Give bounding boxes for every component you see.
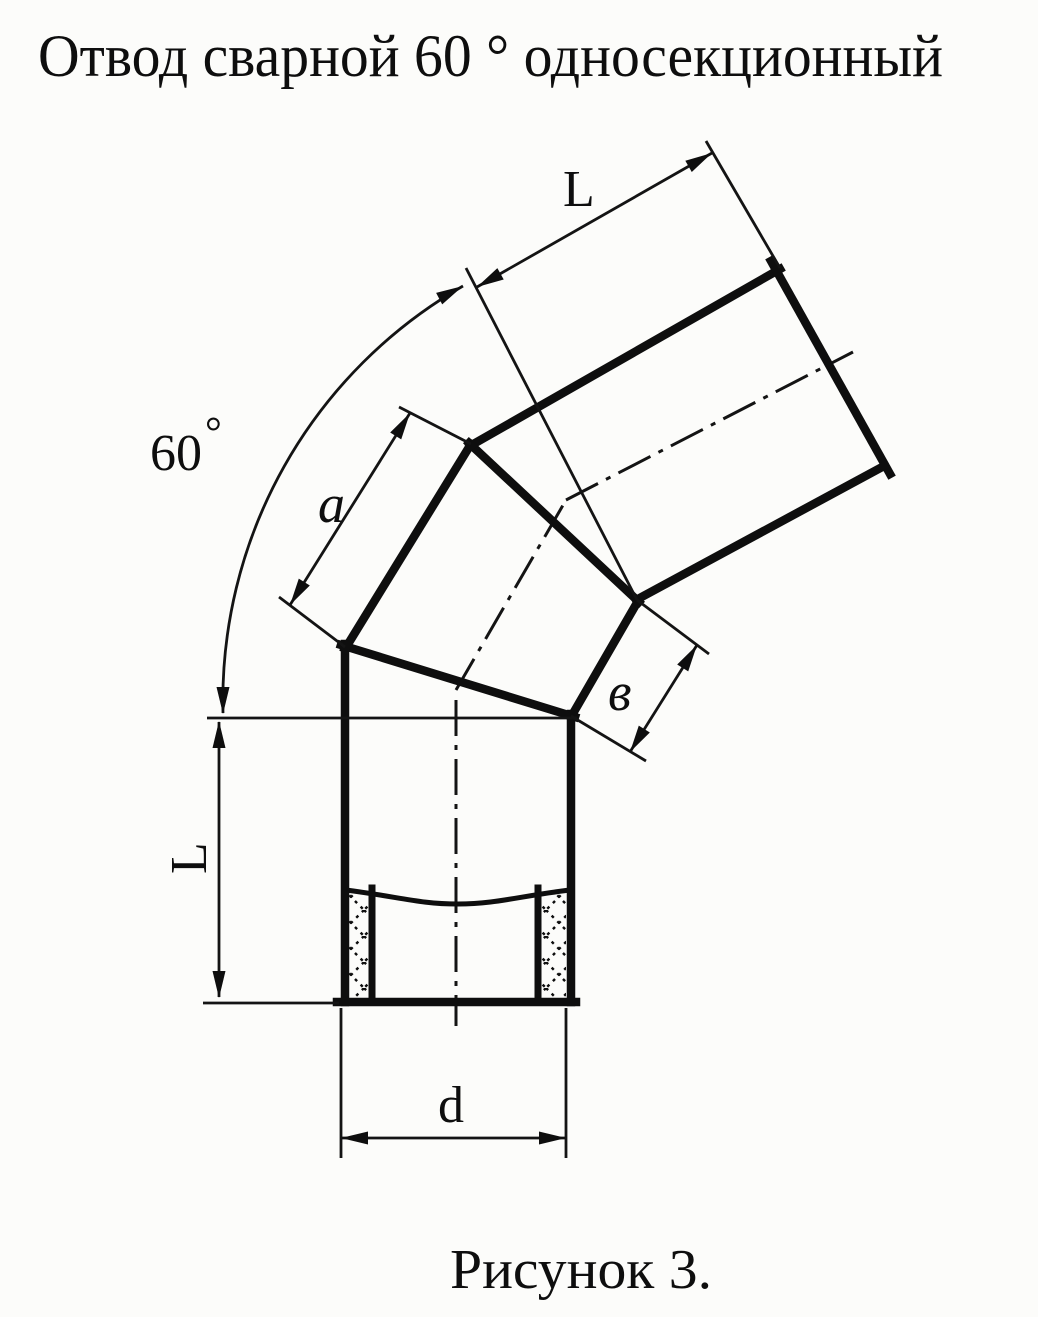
arrow-left-L-bottom	[213, 971, 226, 998]
label-lower-pipe-length: L	[161, 842, 218, 874]
middle-section-centerline	[456, 500, 566, 690]
ext-line-b-upper	[637, 600, 709, 654]
centerlines	[456, 352, 853, 1026]
weld-seam-upper	[469, 443, 639, 602]
pipe-outlines	[337, 261, 890, 1002]
label-middle-inner-edge: в	[608, 662, 631, 722]
ext-line-a-upper	[399, 407, 471, 444]
ext-line-a-lower	[279, 597, 345, 647]
arrow-left-L-top	[213, 721, 226, 748]
elbow-technical-drawing: Отвод сварной 60 ° односекционный	[0, 0, 1038, 1317]
drawing-title: Отвод сварной 60 ° односекционный	[38, 23, 943, 89]
upper-pipe-outer-wall	[470, 269, 780, 446]
scanned-drawing-page: Отвод сварной 60 ° односекционный	[0, 0, 1038, 1317]
arrow-arc-bottom	[217, 687, 230, 714]
upper-pipe-inner-wall	[636, 466, 884, 600]
arrowheads	[213, 147, 716, 1144]
weld-seam-lower	[341, 645, 575, 717]
socket-insert	[346, 888, 570, 1000]
dimension-lines	[219, 153, 712, 1138]
figure-caption: Рисунок 3.	[450, 1239, 712, 1301]
label-angle-value: 60	[150, 425, 202, 482]
socket-hatch-left	[349, 892, 370, 1000]
label-pipe-diameter: d	[438, 1077, 464, 1134]
arrow-d-right	[539, 1132, 566, 1145]
arrow-d-left	[341, 1132, 368, 1145]
ext-line-upper-L-right	[706, 141, 780, 268]
label-middle-outer-edge: a	[318, 474, 345, 534]
label-angle-degree-mark: °	[205, 410, 222, 456]
upper-pipe-centerline	[566, 352, 853, 500]
socket-hatch-right	[541, 892, 566, 1000]
upper-pipe-end-edge	[771, 261, 890, 474]
label-upper-pipe-length: L	[563, 161, 595, 218]
middle-section-outer-edge	[345, 444, 471, 649]
arrow-arc-top	[436, 280, 466, 304]
